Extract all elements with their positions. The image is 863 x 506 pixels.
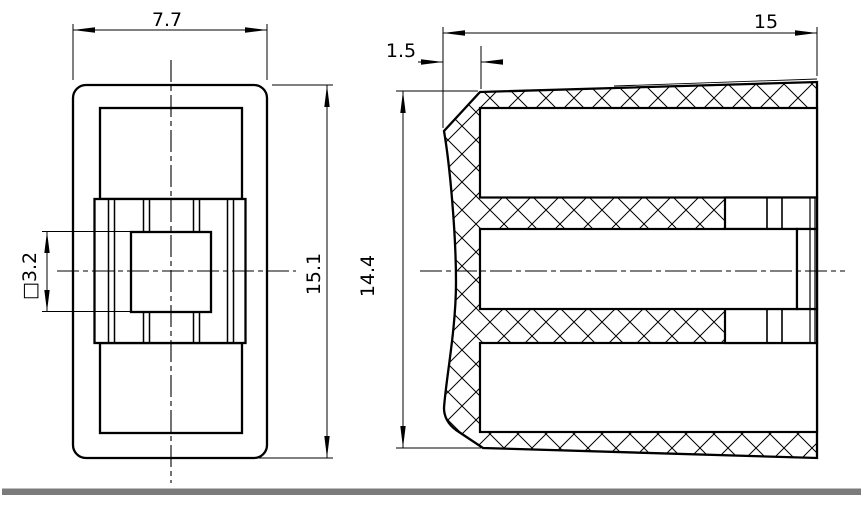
arrowhead-down-icon (324, 436, 329, 458)
dim-7-7-lines (73, 24, 267, 80)
front-view (57, 60, 296, 483)
dim-3-2-label: □3.2 (19, 252, 41, 300)
arrowhead-right-icon (795, 30, 817, 35)
arrowhead-left-icon (443, 30, 465, 35)
section-back-wall (797, 229, 817, 309)
arrowhead-left-icon (481, 59, 503, 64)
arrowhead-down-icon (400, 426, 405, 448)
dim-15-1-label: 15.1 (303, 253, 325, 295)
footer-divider-bar (2, 489, 861, 496)
dim-1-5-lines (418, 46, 503, 89)
section-upper-rib-end (725, 198, 817, 230)
arrowhead-right-icon (245, 27, 267, 32)
dim-14-4-label: 14.4 (357, 255, 379, 297)
dim-1-5-label: 1.5 (386, 40, 416, 62)
arrowhead-up-icon (400, 91, 405, 113)
arrowhead-up-icon (44, 232, 49, 254)
dimension-front-width: 7.7 (73, 9, 267, 80)
two-view-engineering-drawing: 7.7 15 1.5 15.1 14.4 (0, 0, 863, 506)
section-lower-rib-end (725, 309, 817, 343)
technical-drawing-canvas: 7.7 15 1.5 15.1 14.4 (0, 0, 863, 506)
arrowhead-left-icon (73, 27, 95, 32)
arrowhead-up-icon (324, 85, 329, 107)
section-upper-cavity (480, 108, 817, 198)
side-section-view (420, 79, 845, 458)
arrowhead-down-icon (44, 290, 49, 312)
section-square-channel (480, 229, 797, 309)
dim-7-7-label: 7.7 (152, 9, 182, 31)
dimension-wall-thickness: 1.5 (386, 40, 503, 89)
dim-15-label: 15 (754, 11, 778, 33)
arrowhead-right-icon (421, 59, 443, 64)
section-lower-cavity (480, 343, 817, 432)
